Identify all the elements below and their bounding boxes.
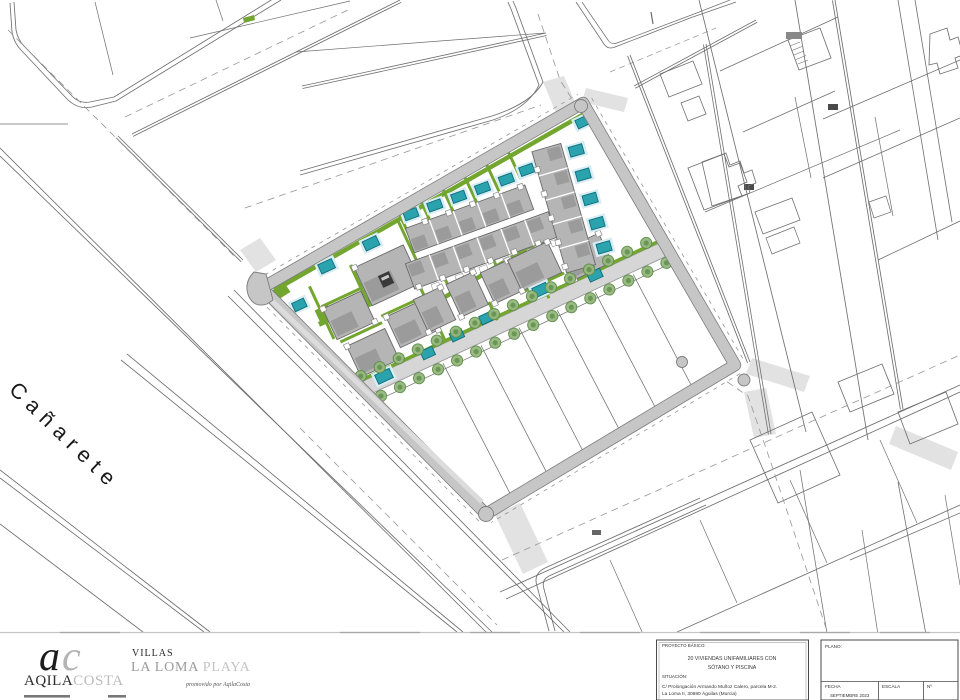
svg-text:C/ Prolongación Armando Muñoz: C/ Prolongación Armando Muñoz Calero, pa… xyxy=(662,684,777,690)
svg-text:VILLAS: VILLAS xyxy=(132,648,174,659)
svg-text:FECHA: FECHA xyxy=(825,684,842,689)
svg-text:SEPTIEMBRE 2023: SEPTIEMBRE 2023 xyxy=(830,693,870,698)
svg-text:20 VIVIENDAS UNIFAMILIARES CON: 20 VIVIENDAS UNIFAMILIARES CON xyxy=(688,656,777,662)
svg-text:ESCALA: ESCALA xyxy=(882,684,901,689)
svg-text:La Loma II, 30880 Águilas (Mur: La Loma II, 30880 Águilas (Murcia) xyxy=(662,690,737,697)
svg-text:Nº: Nº xyxy=(927,684,932,689)
svg-text:LA LOMA PLAYA: LA LOMA PLAYA xyxy=(131,660,251,675)
svg-text:SITUACIÓN:: SITUACIÓN: xyxy=(662,674,687,679)
svg-text:AQILACOSTA: AQILACOSTA xyxy=(24,673,124,689)
svg-text:PROYECTO BÁSICO:: PROYECTO BÁSICO: xyxy=(662,643,706,648)
svg-text:PLANO:: PLANO: xyxy=(825,644,842,649)
svg-text:SÓTANO Y PISCINA: SÓTANO Y PISCINA xyxy=(708,664,757,671)
svg-text:promovido por AqilaCosta: promovido por AqilaCosta xyxy=(185,682,250,688)
